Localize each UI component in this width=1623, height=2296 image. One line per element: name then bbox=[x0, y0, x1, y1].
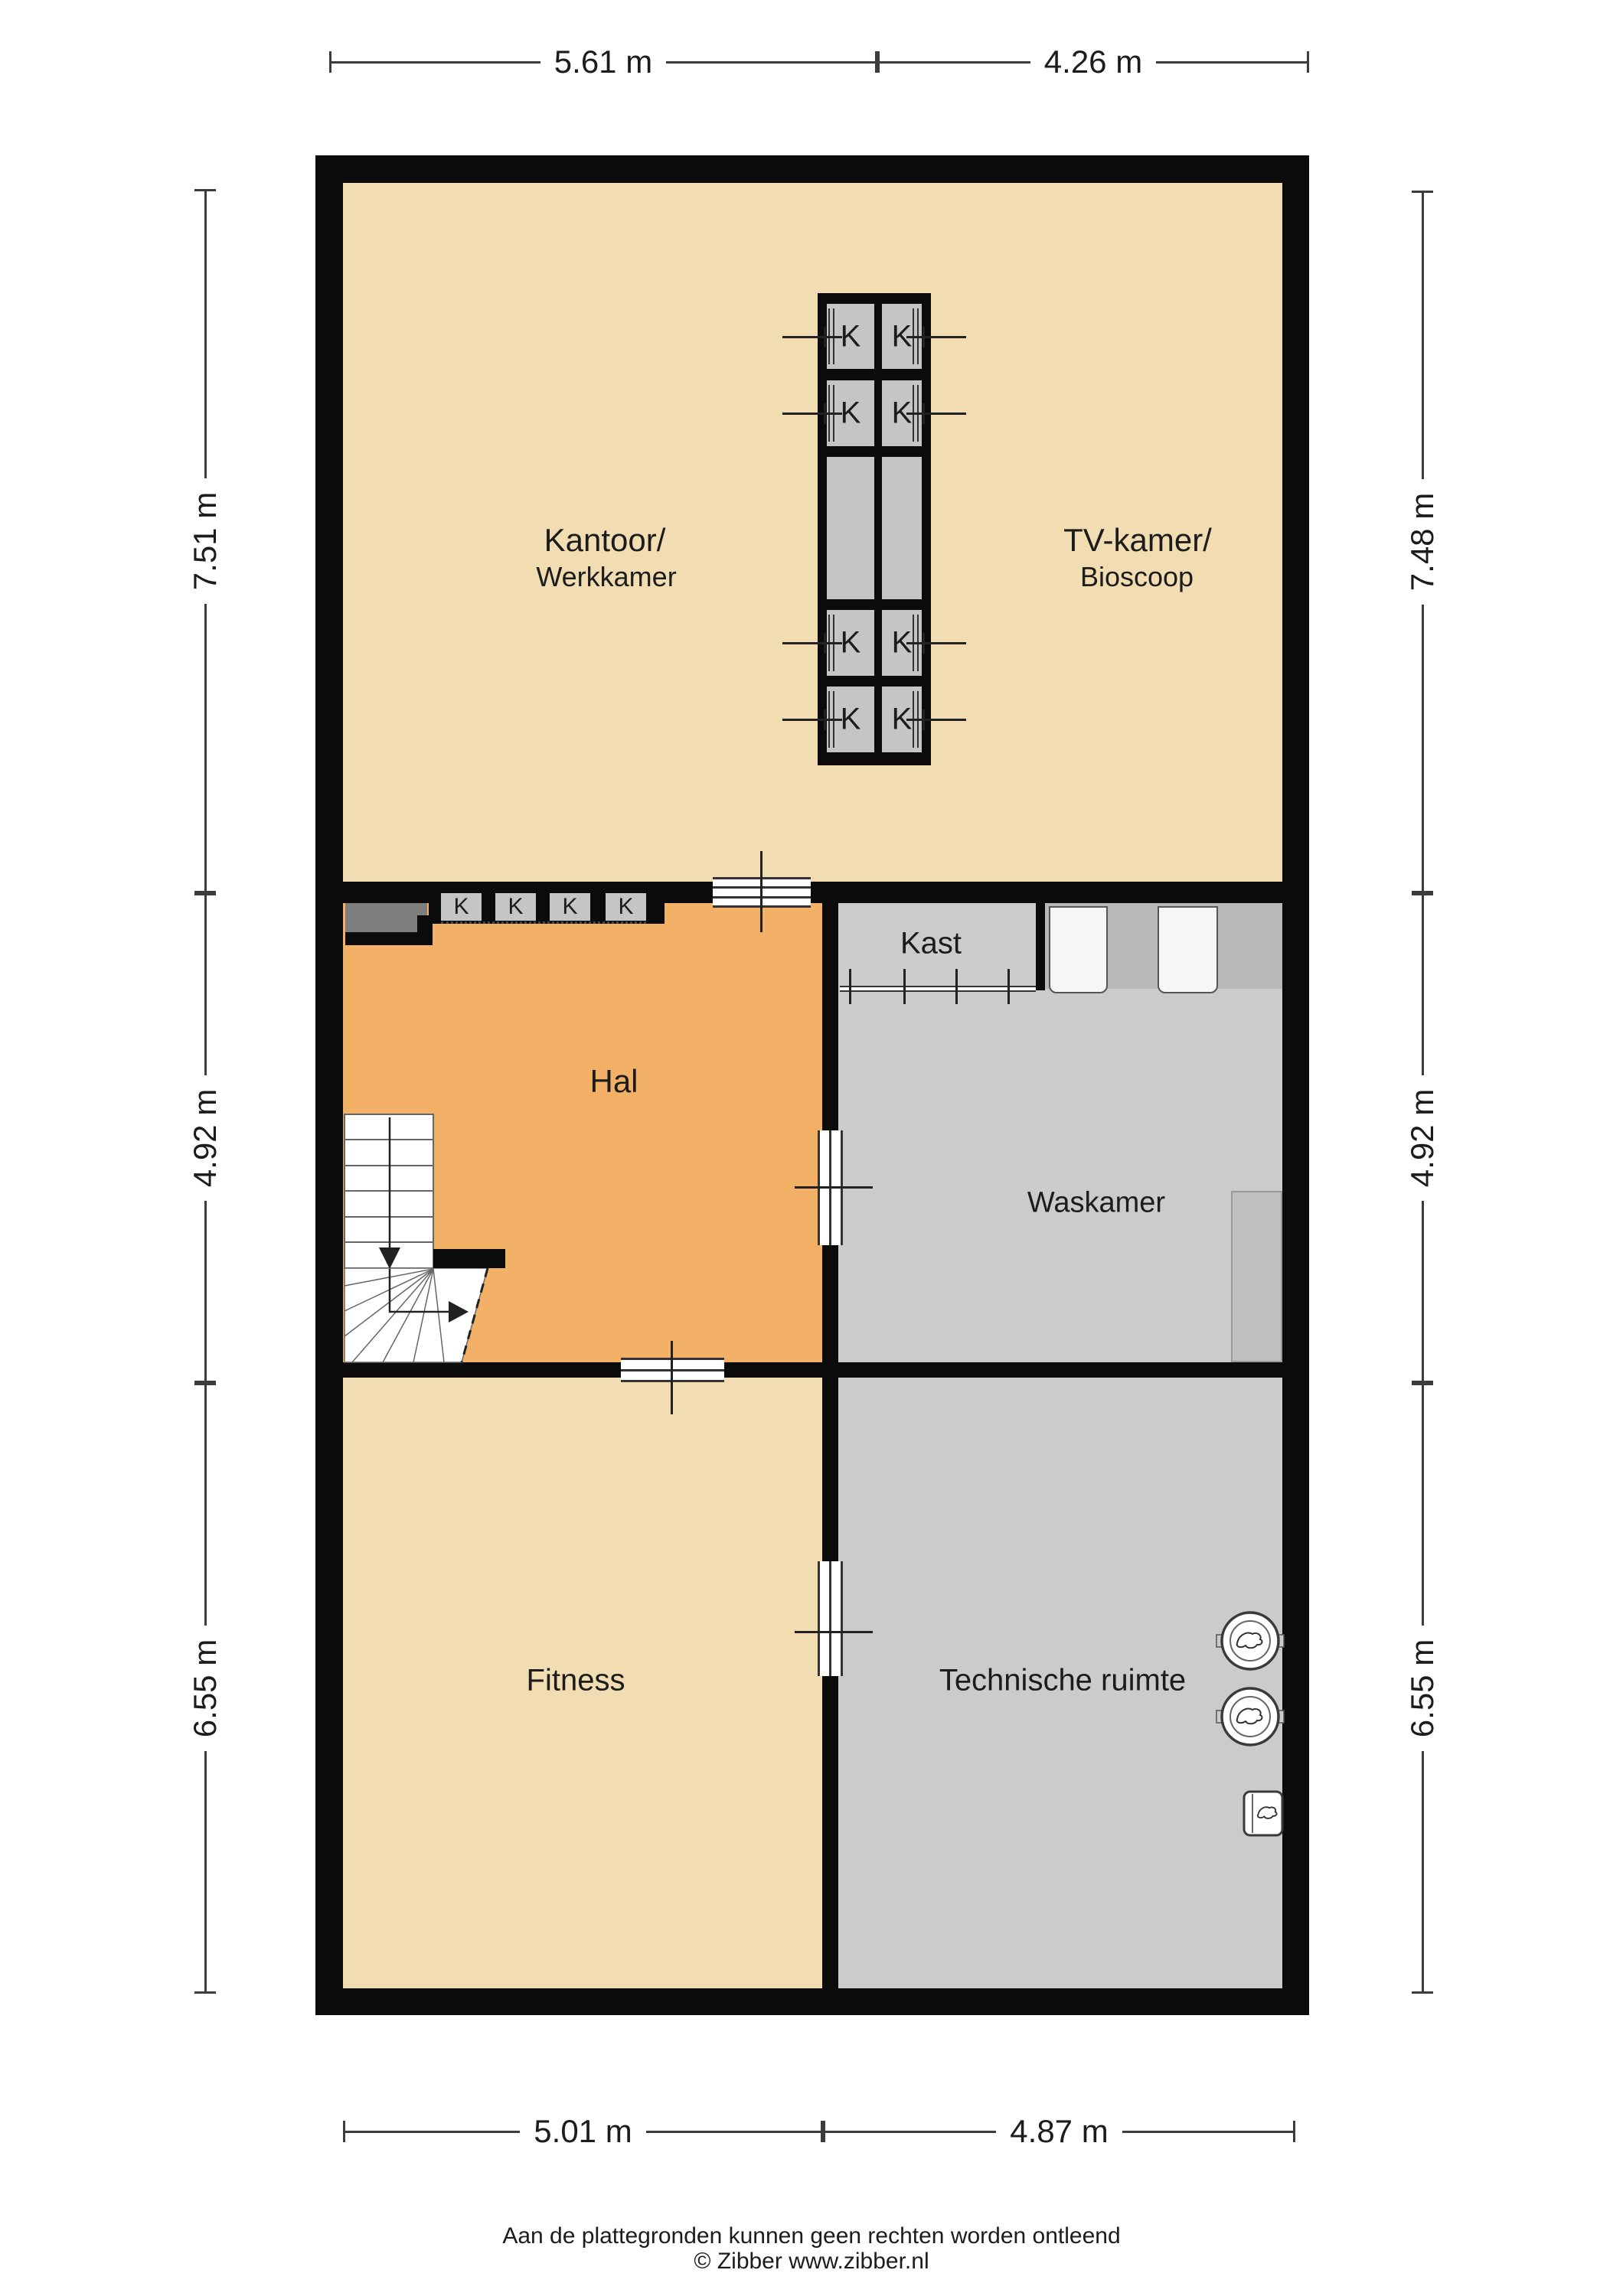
dimension-value: 7.51 m bbox=[189, 478, 221, 604]
closet-cell-label: K bbox=[841, 396, 861, 431]
kast-sliding-door-line bbox=[840, 986, 1036, 992]
wall-middle-vertical bbox=[822, 882, 838, 1988]
technische-appliances bbox=[1202, 1600, 1301, 1852]
dimension-tick bbox=[1412, 1383, 1433, 1385]
hal-closet-cell-label: K bbox=[618, 894, 633, 920]
hal-closet-cell: K bbox=[550, 893, 590, 921]
closet-tick bbox=[782, 413, 842, 415]
hal-closet-cell-label: K bbox=[508, 894, 523, 920]
dimension-value: 5.01 m bbox=[520, 2115, 645, 2148]
closet-tick bbox=[923, 709, 925, 730]
dimension-bottom-left: 5.01 m bbox=[343, 2115, 823, 2148]
closet-tick bbox=[906, 719, 966, 721]
room-label-tv-kamer: TV-kamer/ bbox=[1063, 522, 1212, 559]
duct-niche bbox=[345, 903, 427, 932]
dimension-value: 4.87 m bbox=[996, 2115, 1122, 2148]
door-fitness-technische-tick bbox=[795, 1631, 873, 1633]
closet-tick bbox=[906, 413, 966, 415]
dimension-top-right: 4.26 m bbox=[877, 46, 1309, 78]
door-fitness-technische bbox=[818, 1561, 843, 1676]
closet-tick bbox=[824, 403, 826, 424]
dimension-left-top: 7.51 m bbox=[189, 189, 221, 893]
closet-column: K K K K K K K K bbox=[818, 293, 931, 765]
wall-exterior-bottom bbox=[315, 1988, 1309, 2015]
dimension-value: 4.92 m bbox=[1406, 1075, 1438, 1201]
closet-tick bbox=[923, 403, 925, 424]
closet-tick bbox=[782, 719, 842, 721]
hal-closet-door-dashed-line bbox=[441, 921, 646, 924]
kast-door-tick bbox=[1007, 969, 1010, 1004]
hal-closet-cell-label: K bbox=[562, 894, 577, 920]
room-label-waskamer: Waskamer bbox=[1027, 1187, 1165, 1220]
dimension-top-left: 5.61 m bbox=[329, 46, 877, 78]
dimension-value: 6.55 m bbox=[189, 1626, 221, 1751]
room-label-technische-ruimte: Technische ruimte bbox=[939, 1664, 1186, 1698]
floorplan-canvas: K K K K K K K K bbox=[0, 0, 1623, 2296]
closet-tick bbox=[824, 709, 826, 730]
dimension-tick bbox=[1412, 893, 1433, 895]
dimension-value: 4.26 m bbox=[1030, 46, 1156, 78]
hal-closet-cell: K bbox=[495, 893, 536, 921]
dimension-right-bottom: 6.55 m bbox=[1406, 1383, 1438, 1994]
closet-tick bbox=[782, 642, 842, 644]
dimension-tick bbox=[1307, 51, 1309, 73]
kast-door-tick bbox=[849, 969, 851, 1004]
waskamer-counter bbox=[1231, 1191, 1282, 1362]
closet-cell-label: K bbox=[841, 703, 861, 737]
room-label-werkkamer: Werkkamer bbox=[536, 561, 676, 593]
dimension-bottom-right: 4.87 m bbox=[823, 2115, 1295, 2148]
door-topfloor-hal-tick bbox=[760, 851, 763, 932]
dimension-value: 6.55 m bbox=[1406, 1626, 1438, 1751]
dimension-left-middle: 4.92 m bbox=[189, 893, 221, 1383]
wall-exterior-top bbox=[315, 155, 1309, 183]
footer-disclaimer: Aan de plattegronden kunnen geen rechten… bbox=[502, 2223, 1120, 2249]
hal-closet-cell: K bbox=[441, 893, 482, 921]
kast-door-tick bbox=[903, 969, 906, 1004]
closet-cell-label: K bbox=[841, 626, 861, 660]
stair-stub-wall bbox=[433, 1249, 505, 1268]
room-label-fitness: Fitness bbox=[527, 1664, 625, 1698]
dryer-machine bbox=[1158, 906, 1218, 993]
closet-tick bbox=[906, 642, 966, 644]
closet-tick bbox=[824, 327, 826, 347]
hal-closet-cell: K bbox=[606, 893, 646, 921]
footer-copyright: © Zibber www.zibber.nl bbox=[694, 2249, 929, 2275]
dimension-right-top: 7.48 m bbox=[1406, 191, 1438, 893]
dimension-tick bbox=[194, 1383, 216, 1385]
closet-tick bbox=[923, 327, 925, 347]
wall-kast-stub bbox=[1036, 903, 1045, 990]
closet-cell-tall bbox=[882, 457, 922, 599]
wall-exterior-left bbox=[315, 155, 343, 2015]
boiler-unit-icon bbox=[1216, 1688, 1284, 1745]
washing-machine bbox=[1049, 906, 1108, 993]
staircase bbox=[337, 1102, 505, 1378]
dimension-right-middle: 4.92 m bbox=[1406, 893, 1438, 1383]
dimension-tick bbox=[1293, 2121, 1295, 2142]
room-label-kast: Kast bbox=[900, 927, 962, 961]
dimension-left-bottom: 6.55 m bbox=[189, 1383, 221, 1994]
closet-cell-tall bbox=[827, 457, 874, 599]
dimension-tick bbox=[194, 1991, 216, 1994]
closet-tick bbox=[824, 633, 826, 654]
kast-door-tick bbox=[955, 969, 958, 1004]
closet-tick bbox=[923, 633, 925, 654]
room-label-kantoor: Kantoor/ bbox=[544, 522, 666, 559]
dimension-value: 7.48 m bbox=[1406, 479, 1438, 605]
dimension-tick bbox=[194, 189, 216, 191]
boiler-unit-icon bbox=[1216, 1613, 1284, 1669]
dimension-tick bbox=[194, 893, 216, 895]
dimension-value: 5.61 m bbox=[540, 46, 666, 78]
door-hal-waskamer-tick bbox=[795, 1186, 873, 1189]
dimension-value: 4.92 m bbox=[189, 1075, 221, 1201]
room-label-bioscoop: Bioscoop bbox=[1080, 561, 1194, 593]
closet-tick bbox=[906, 336, 966, 338]
hal-closet-strip: K K K K bbox=[429, 882, 665, 924]
geyser-unit-icon bbox=[1244, 1792, 1282, 1835]
room-label-hal: Hal bbox=[589, 1063, 638, 1100]
dimension-tick bbox=[1412, 191, 1433, 193]
door-hal-fitness-tick bbox=[671, 1341, 673, 1414]
dimension-tick bbox=[1412, 1991, 1433, 1994]
closet-tick bbox=[782, 336, 842, 338]
hal-closet-cell-label: K bbox=[453, 894, 469, 920]
closet-cell-label: K bbox=[841, 319, 861, 354]
